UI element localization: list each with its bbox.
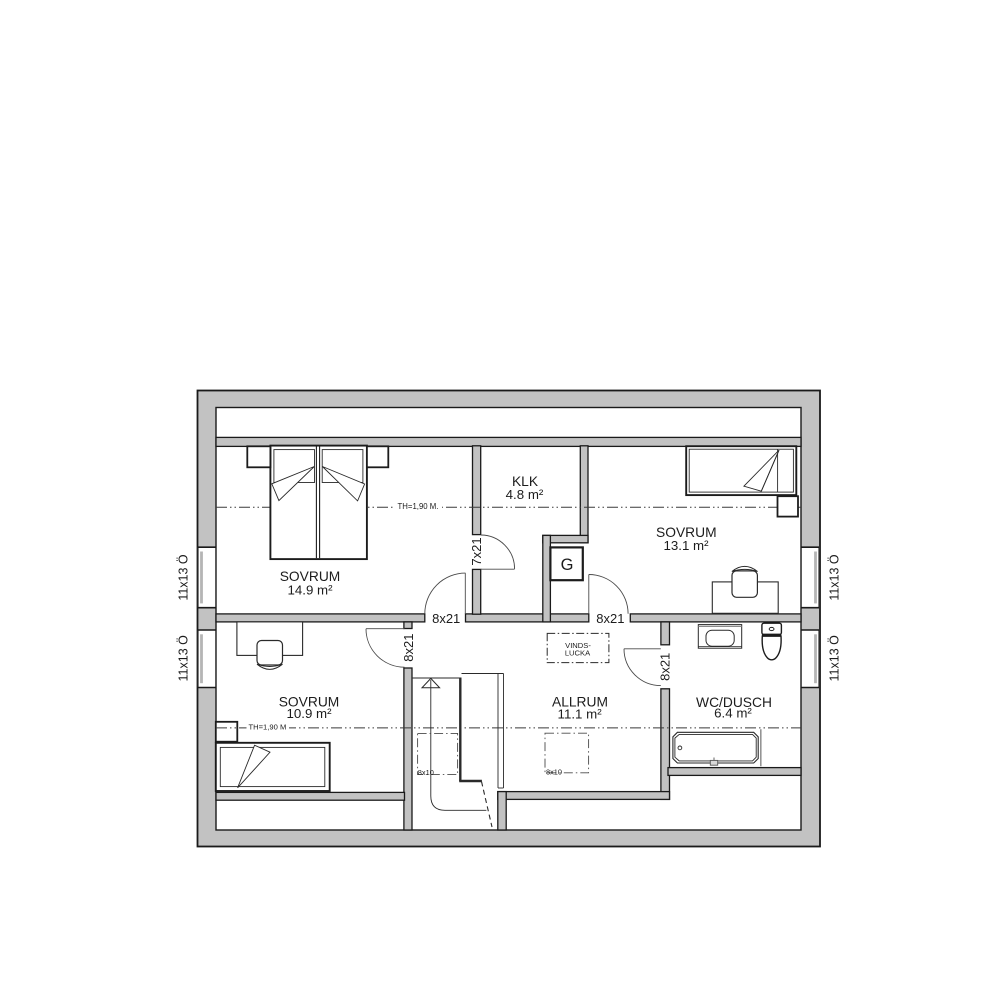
svg-text:G: G — [561, 556, 574, 574]
svg-text:7x21: 7x21 — [469, 537, 484, 565]
svg-text:11.1 m²: 11.1 m² — [558, 707, 603, 722]
svg-text:11x13 Ö: 11x13 Ö — [176, 554, 190, 601]
svg-text:14.9 m²: 14.9 m² — [287, 583, 333, 598]
svg-text:8x21: 8x21 — [432, 611, 460, 626]
svg-text:6.4 m²: 6.4 m² — [714, 706, 752, 721]
svg-text:8x21: 8x21 — [401, 633, 416, 661]
svg-text:13.1 m²: 13.1 m² — [663, 538, 709, 553]
svg-text:11x13 Ö: 11x13 Ö — [827, 635, 841, 682]
svg-text:4.8 m²: 4.8 m² — [506, 487, 544, 502]
svg-text:LUCKA: LUCKA — [565, 649, 591, 658]
svg-text:TH=1,90 M.: TH=1,90 M. — [398, 502, 439, 511]
svg-text:11x13 Ö: 11x13 Ö — [176, 635, 190, 682]
svg-text:11x13 Ö: 11x13 Ö — [827, 554, 841, 601]
svg-text:TH=1,90 M: TH=1,90 M — [249, 722, 287, 731]
svg-text:10.9 m²: 10.9 m² — [286, 706, 332, 721]
svg-text:8x21: 8x21 — [657, 653, 672, 681]
svg-text:8x10: 8x10 — [546, 767, 562, 776]
svg-text:8x10: 8x10 — [418, 768, 434, 777]
svg-text:8x21: 8x21 — [596, 611, 624, 626]
